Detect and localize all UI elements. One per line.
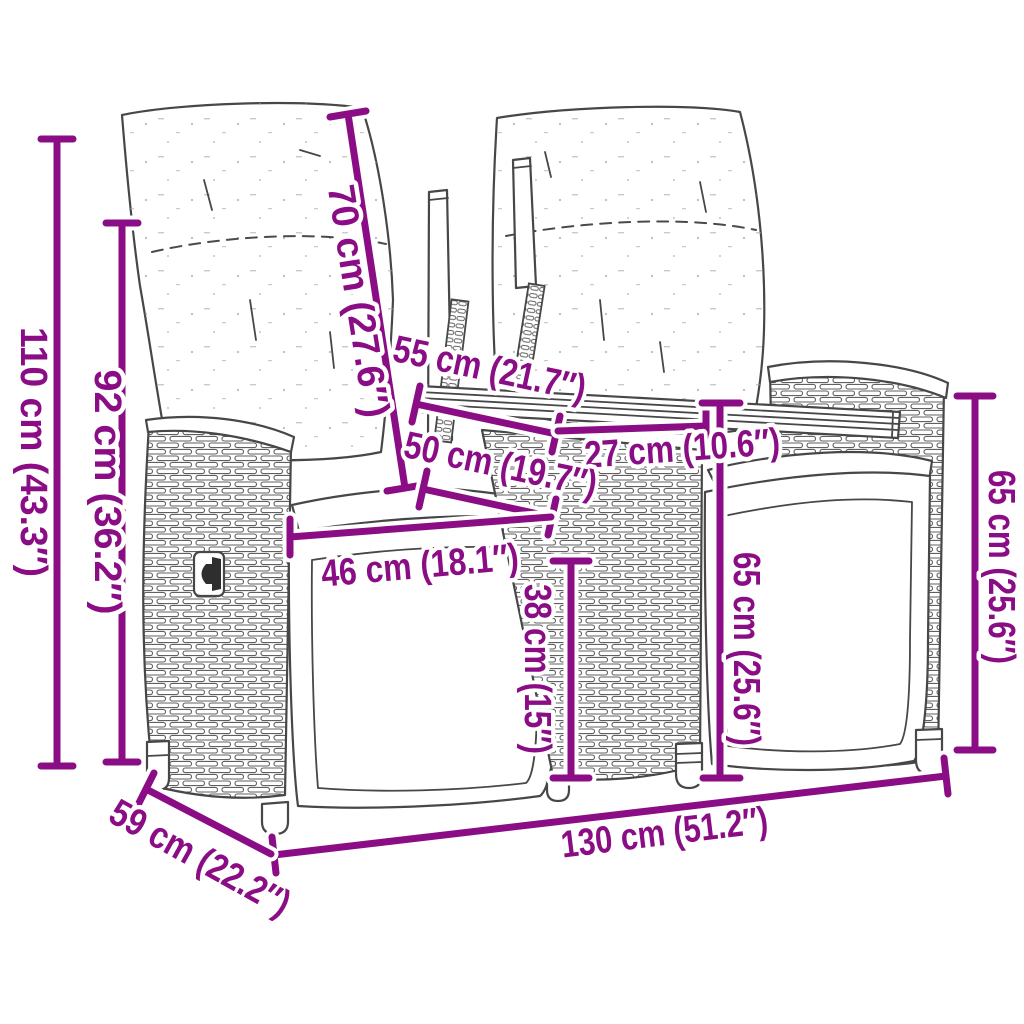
dimension-label-backrest-height: 92 cm (36.2″) bbox=[86, 370, 128, 615]
dimension-label-side-height-outer: 65 cm (25.6″) bbox=[980, 470, 1022, 664]
diagram-canvas: 110 cm (43.3″) 92 cm (36.2″) 70 cm (27.6… bbox=[0, 0, 1024, 1024]
dimension-label-side-height-inner: 65 cm (25.6″) bbox=[725, 552, 767, 746]
dimension-label-seat-front-height: 38 cm (15″) bbox=[516, 584, 558, 754]
furniture-dimension-diagram: 110 cm (43.3″) 92 cm (36.2″) 70 cm (27.6… bbox=[0, 0, 1024, 1024]
recline-lock-icon bbox=[194, 552, 224, 596]
dimension-label-total-height: 110 cm (43.3″) bbox=[12, 327, 54, 577]
